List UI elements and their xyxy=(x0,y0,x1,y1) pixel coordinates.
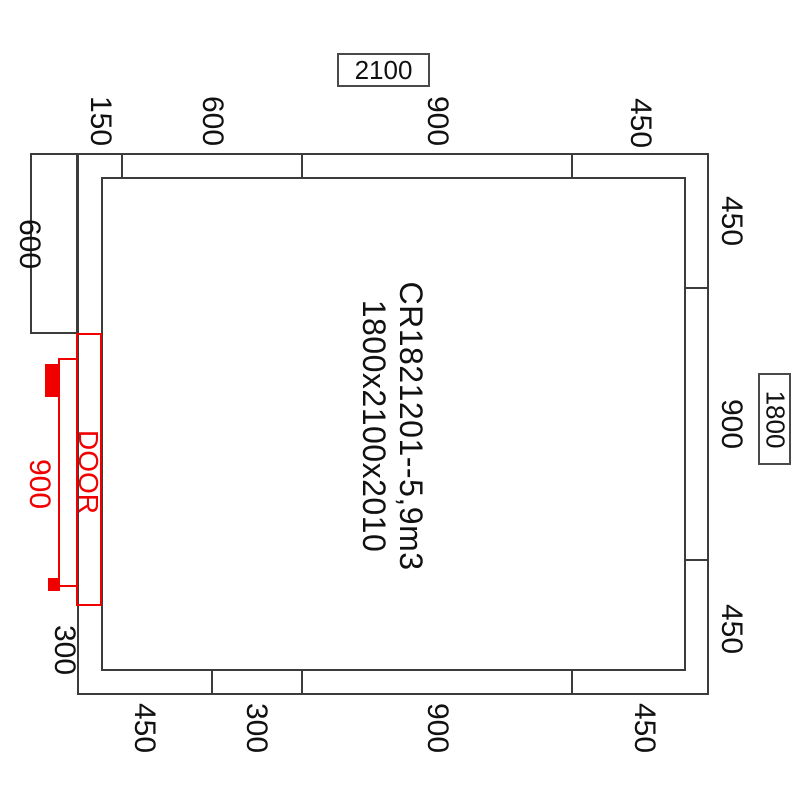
door-handle xyxy=(45,364,58,397)
panel-joint-bottom-750 xyxy=(301,671,303,695)
panel-joint-right-450 xyxy=(684,287,709,289)
room-code: CR1821201--5,9m3 xyxy=(392,281,429,570)
dim-top-1: 150 xyxy=(85,96,115,146)
dim-top-4: 450 xyxy=(625,98,655,148)
overall-height-label: 1800 xyxy=(759,390,790,448)
floor-plan-drawing: DOOR 900 2100 1800 150 600 900 450 450 3… xyxy=(0,0,800,800)
overall-width-box: 2100 xyxy=(337,53,430,87)
door-opening-top-line xyxy=(76,333,102,335)
dim-top-2: 600 xyxy=(197,96,227,146)
overall-height-box: 1800 xyxy=(758,373,791,465)
dim-top-3: 900 xyxy=(422,96,452,146)
dim-left-2: 300 xyxy=(49,625,79,675)
dim-right-1: 450 xyxy=(716,196,746,246)
panel-joint-bottom-450 xyxy=(211,671,213,695)
door-opening-bottom-line xyxy=(76,604,102,606)
room-size: 1800x2100x2010 xyxy=(355,281,392,570)
panel-joint-right-1350 xyxy=(684,559,709,561)
dim-bottom-3: 900 xyxy=(422,703,452,753)
panel-joint-bottom-1650 xyxy=(571,671,573,695)
dim-right-2: 900 xyxy=(716,399,746,449)
panel-joint-top-1650 xyxy=(571,153,573,177)
dim-bottom-1: 450 xyxy=(129,703,159,753)
dim-bottom-2: 300 xyxy=(241,703,271,753)
overall-width-label: 2100 xyxy=(355,55,413,86)
room-title: CR1821201--5,9m3 1800x2100x2010 xyxy=(355,281,429,570)
door-hinge xyxy=(48,578,60,591)
dim-left-1: 600 xyxy=(14,219,44,269)
door-label: DOOR xyxy=(74,430,102,514)
panel-joint-top-750 xyxy=(301,153,303,177)
dim-right-3: 450 xyxy=(716,604,746,654)
dim-bottom-4: 450 xyxy=(629,703,659,753)
panel-joint-top-150 xyxy=(121,153,123,177)
door-width-dim: 900 xyxy=(24,459,54,509)
